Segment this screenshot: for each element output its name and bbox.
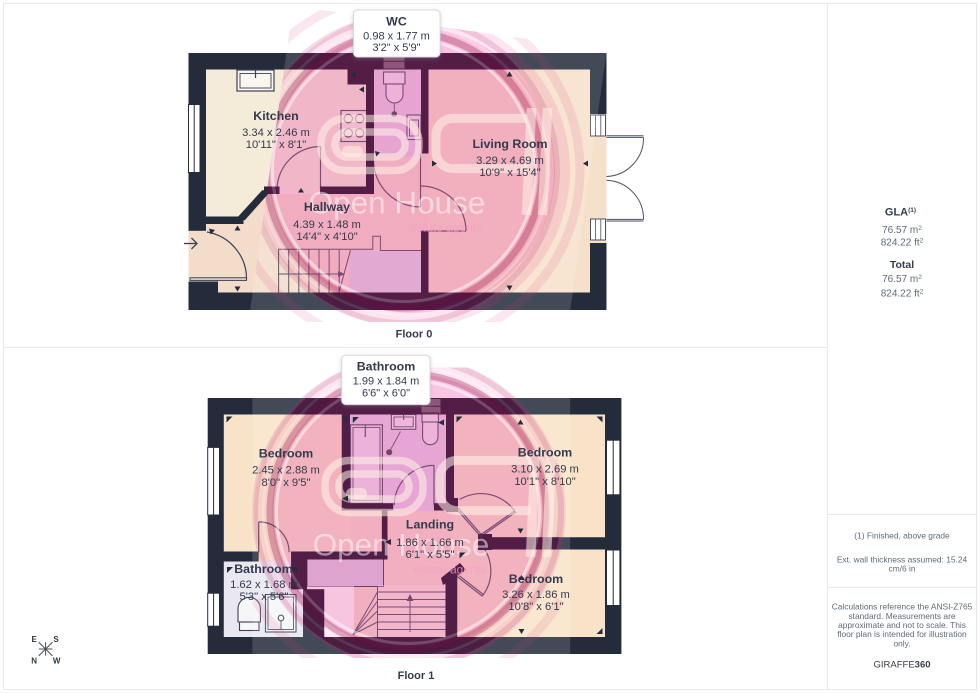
svg-text:E: E (32, 635, 38, 644)
svg-text:only.: only. (893, 638, 910, 648)
svg-text:cm/6 in: cm/6 in (889, 564, 916, 574)
svg-text:5'3" x 5'6": 5'3" x 5'6" (240, 591, 289, 603)
svg-text:1.99 x 1.84 m: 1.99 x 1.84 m (353, 376, 420, 388)
svg-text:N: N (31, 656, 37, 665)
svg-text:0.98 x 1.77 m: 0.98 x 1.77 m (363, 31, 430, 43)
svg-text:Total: Total (890, 259, 914, 271)
svg-text:10'8" x 6'1": 10'8" x 6'1" (508, 601, 563, 613)
svg-text:Hallway: Hallway (304, 200, 350, 214)
svg-text:WC: WC (386, 15, 407, 29)
svg-text:1.86 x 1.66 m: 1.86 x 1.66 m (396, 537, 464, 549)
svg-text:3.29 x 4.69 m: 3.29 x 4.69 m (476, 155, 544, 167)
svg-text:Kitchen: Kitchen (253, 109, 298, 123)
svg-text:Landing: Landing (406, 518, 454, 532)
svg-text:Bedroom: Bedroom (259, 447, 313, 461)
svg-text:824.22 ft2: 824.22 ft2 (881, 288, 924, 299)
svg-text:3.26 x 1.86 m: 3.26 x 1.86 m (502, 589, 570, 601)
svg-text:824.22 ft2: 824.22 ft2 (881, 237, 924, 248)
svg-text:1.62 x 1.68 m: 1.62 x 1.68 m (230, 579, 298, 591)
svg-text:76.57 m2: 76.57 m2 (882, 225, 922, 236)
svg-text:4.39 x 1.48 m: 4.39 x 1.48 m (293, 219, 361, 231)
svg-text:Bathroom: Bathroom (357, 360, 416, 374)
svg-text:estate agents: estate agents (410, 221, 482, 235)
svg-text:estate agents: estate agents (414, 563, 486, 577)
svg-text:Floor 0: Floor 0 (396, 329, 433, 341)
svg-text:Bathroom: Bathroom (234, 562, 293, 576)
svg-text:2.45 x 2.88 m: 2.45 x 2.88 m (252, 465, 320, 477)
svg-text:10'11" x 8'1": 10'11" x 8'1" (246, 139, 307, 151)
svg-text:GLA(1): GLA(1) (885, 207, 916, 219)
svg-text:3'2" x 5'9": 3'2" x 5'9" (372, 42, 420, 54)
svg-text:10'9" x 15'4": 10'9" x 15'4" (479, 167, 540, 179)
svg-text:3.10 x 2.69 m: 3.10 x 2.69 m (511, 464, 579, 476)
svg-text:8'0" x 9'5": 8'0" x 9'5" (262, 477, 311, 489)
svg-text:6'6" x 6'0": 6'6" x 6'0" (362, 388, 410, 400)
svg-text:3.34 x 2.46 m: 3.34 x 2.46 m (242, 127, 310, 139)
svg-text:Bedroom: Bedroom (509, 572, 563, 586)
svg-text:Bedroom: Bedroom (518, 446, 572, 460)
svg-text:6'1" x 5'5": 6'1" x 5'5" (406, 549, 455, 561)
svg-text:W: W (53, 656, 61, 665)
svg-text:14'4" x 4'10": 14'4" x 4'10" (296, 231, 357, 243)
svg-text:GIRAFFE360: GIRAFFE360 (873, 660, 930, 671)
svg-text:(1) Finished, above grade: (1) Finished, above grade (854, 530, 950, 540)
svg-text:S: S (53, 635, 59, 644)
svg-text:76.57 m2: 76.57 m2 (882, 274, 922, 285)
svg-text:Floor 1: Floor 1 (398, 670, 435, 682)
svg-text:10'1" x 8'10": 10'1" x 8'10" (514, 476, 575, 488)
svg-text:Living Room: Living Room (472, 137, 547, 151)
